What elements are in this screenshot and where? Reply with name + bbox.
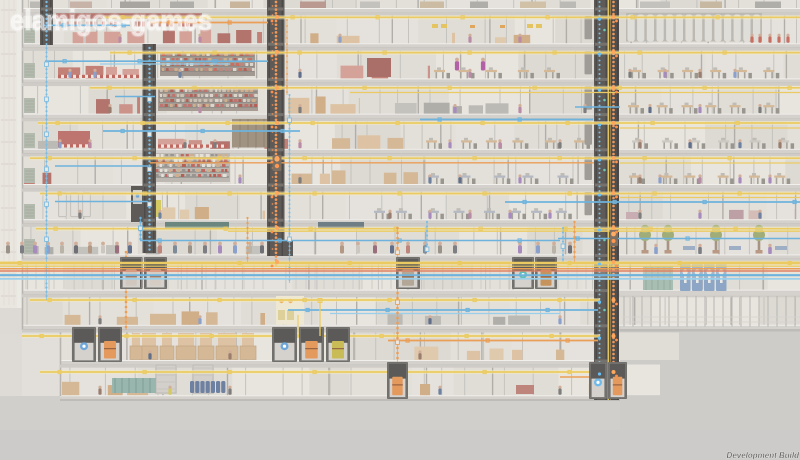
svg-text:elamigos-games: elamigos-games [10, 5, 212, 37]
svg-text:Development Build: Development Build [727, 451, 800, 460]
